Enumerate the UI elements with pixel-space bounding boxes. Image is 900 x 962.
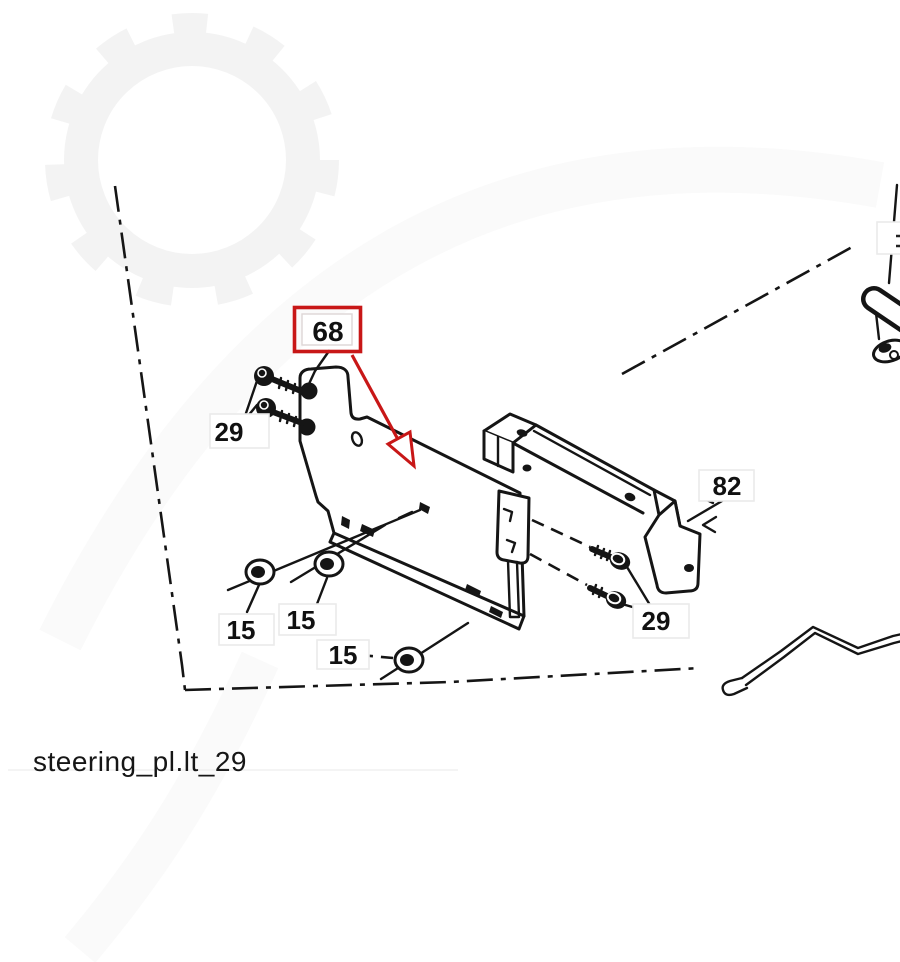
steering-shaft-partial bbox=[871, 185, 900, 366]
callout-label[interactable]: 15 bbox=[329, 640, 358, 670]
rail-hole bbox=[623, 491, 636, 502]
parts-diagram-canvas: 29 15 15 15 29 82 68 steering_pl.lt_29 bbox=[0, 0, 900, 962]
callout-label[interactable]: 29 bbox=[642, 606, 671, 636]
callout-label[interactable]: 29 bbox=[215, 417, 244, 447]
bolt-head bbox=[603, 588, 629, 612]
callout-15-a[interactable]: 15 bbox=[219, 614, 274, 645]
callout-label[interactable]: 15 bbox=[287, 605, 316, 635]
support-bracket-82[interactable] bbox=[513, 425, 700, 593]
callout-15-b[interactable]: 15 bbox=[279, 604, 336, 635]
bracket-hole bbox=[684, 564, 694, 572]
steering-drag-link bbox=[723, 627, 900, 695]
callout-29-left[interactable]: 29 bbox=[210, 414, 269, 448]
bolt-pair-29-right[interactable] bbox=[590, 546, 653, 612]
callout-label[interactable]: 15 bbox=[227, 615, 256, 645]
callout-29-right[interactable]: 29 bbox=[633, 604, 689, 638]
callout-label[interactable]: 82 bbox=[713, 471, 742, 501]
upper-box-bracket bbox=[484, 414, 536, 472]
callout-15-c[interactable]: 15 bbox=[317, 640, 369, 670]
callout-label[interactable]: 68 bbox=[312, 316, 343, 347]
steering-plate-68[interactable] bbox=[299, 367, 525, 629]
clipped-label-box bbox=[877, 222, 900, 254]
callout-82[interactable]: 82 bbox=[688, 470, 754, 521]
bracket-hole bbox=[523, 465, 532, 472]
diagram-filename: steering_pl.lt_29 bbox=[33, 746, 247, 777]
